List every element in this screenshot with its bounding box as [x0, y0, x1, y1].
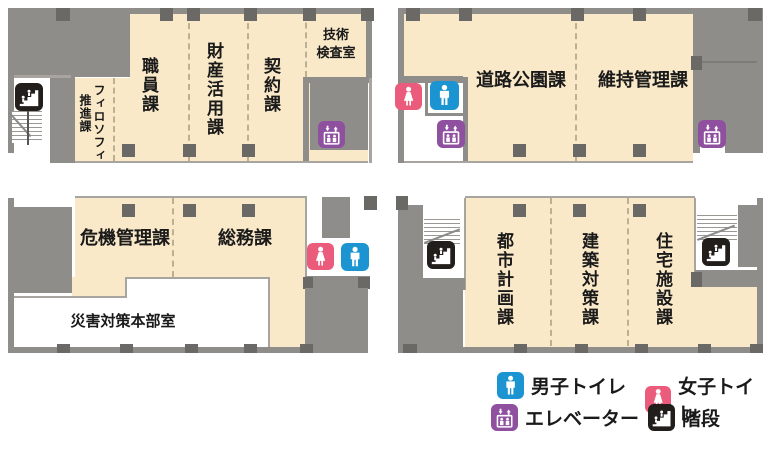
pillar: [633, 144, 646, 157]
floor-plan: フィロソフィ 推進課 職員課 財産活用課 契約課 技術 検査室 道路公園課 維持…: [0, 0, 770, 449]
column: [300, 344, 313, 353]
room-label-philosophy-line2: 推進課: [79, 94, 91, 133]
pillar: [122, 144, 135, 157]
male-toilet-icon: [497, 372, 524, 399]
wall-segment: [125, 277, 270, 279]
wall-segment: [695, 270, 757, 287]
service-block: [8, 13, 130, 77]
column: [361, 8, 374, 21]
column: [635, 344, 648, 353]
column: [459, 8, 472, 21]
column: [698, 344, 711, 353]
elevator-icon: [698, 120, 726, 148]
elevator-icon: [437, 120, 465, 148]
wall-segment: [465, 196, 695, 198]
wall-segment: [369, 78, 372, 163]
column: [120, 344, 133, 353]
column: [750, 344, 763, 353]
column: [187, 8, 200, 21]
column: [575, 344, 588, 353]
female-toilet-icon: [307, 243, 334, 270]
wall-segment: [125, 277, 127, 298]
pillar: [573, 144, 586, 157]
wall-segment: [464, 198, 466, 290]
service-block: [50, 77, 75, 163]
male-toilet-icon: [341, 243, 369, 271]
wall-segment: [428, 113, 463, 116]
pillar: [242, 204, 255, 217]
column: [691, 272, 702, 287]
room-divider: [550, 198, 552, 346]
column: [403, 344, 417, 353]
room-label-building-measures: 建築対策課: [579, 232, 596, 327]
column: [396, 196, 408, 210]
legend-label-stairs: 階段: [682, 404, 720, 431]
room-divider: [247, 13, 249, 161]
wall-segment: [757, 8, 763, 153]
pillar: [183, 204, 196, 217]
pillar: [513, 204, 526, 217]
pillar: [242, 144, 255, 157]
room-divider: [113, 78, 115, 161]
pillar: [513, 144, 526, 157]
column: [748, 8, 762, 21]
room-label-urban-planning: 都市計画課: [494, 232, 511, 327]
column: [244, 344, 257, 353]
room-label-philosophy-line1: フィロソフィ: [93, 84, 105, 162]
pillar: [183, 144, 196, 157]
wall-segment: [14, 296, 127, 298]
room-label-general-affairs: 総務課: [200, 224, 290, 250]
legend-item-elevator: エレベーター: [491, 404, 639, 431]
elevator-icon: [491, 404, 518, 431]
female-toilet-icon: [395, 83, 422, 110]
column: [57, 344, 70, 353]
column: [244, 8, 257, 21]
service-block: [398, 290, 463, 348]
room-label-property: 財産活用課: [204, 42, 221, 137]
wall-segment: [75, 161, 368, 163]
room-label-tech-line1: 技術: [303, 27, 369, 45]
room-label-disaster-hq: 災害対策本部室: [64, 310, 182, 331]
legend-item-male-toilet: 男子トイレ: [497, 372, 626, 399]
column: [160, 8, 173, 21]
room-label-crisis: 危機管理課: [70, 224, 180, 250]
pillar: [122, 204, 135, 217]
pillar: [633, 204, 646, 217]
room-label-tech-inspection: 技術 検査室: [303, 27, 369, 62]
room-label-housing: 住宅施設課: [653, 232, 670, 327]
room-divider: [188, 13, 190, 161]
room-label-tech-line2: 検査室: [303, 45, 369, 63]
service-shaft: [322, 197, 350, 238]
room-patch: [72, 277, 125, 296]
stair-rail: [27, 110, 29, 145]
column: [185, 344, 198, 353]
room-label-contract: 契約課: [261, 57, 278, 114]
service-block: [305, 288, 368, 348]
legend-item-stairs: 階段: [648, 404, 720, 431]
column: [633, 8, 646, 21]
column: [303, 8, 316, 21]
stairs-icon: [702, 238, 730, 266]
wall-segment: [404, 161, 693, 163]
room-divider: [627, 198, 629, 346]
service-block: [8, 207, 72, 293]
wall-segment: [303, 83, 309, 163]
pillar: [573, 204, 586, 217]
room-block-lower-right2: [695, 287, 757, 348]
room-label-staff: 職員課: [139, 57, 156, 114]
wall-segment: [757, 198, 763, 348]
wall-segment: [398, 278, 465, 290]
service-block: [738, 205, 757, 267]
stairs-icon: [648, 404, 675, 431]
column: [364, 196, 377, 210]
service-block: [398, 205, 423, 280]
stairs-icon: [15, 83, 43, 111]
wall-segment: [425, 80, 428, 116]
column: [514, 344, 527, 353]
service-block: [700, 14, 757, 127]
column: [571, 8, 584, 21]
elevator-icon: [318, 121, 345, 148]
room-label-road-park: 道路公園課: [455, 66, 587, 92]
service-block: [725, 127, 757, 153]
legend-label-male-toilet: 男子トイレ: [531, 372, 626, 399]
wall-segment: [14, 75, 71, 78]
wall-segment: [700, 61, 757, 63]
wall-segment: [268, 277, 270, 348]
column: [406, 8, 420, 21]
room-label-maintenance: 維持管理課: [578, 66, 708, 92]
wall-segment: [694, 198, 696, 272]
stairs-icon: [427, 241, 455, 269]
column: [56, 8, 70, 21]
wall-segment: [75, 196, 307, 198]
legend-label-elevator: エレベーター: [525, 404, 639, 431]
